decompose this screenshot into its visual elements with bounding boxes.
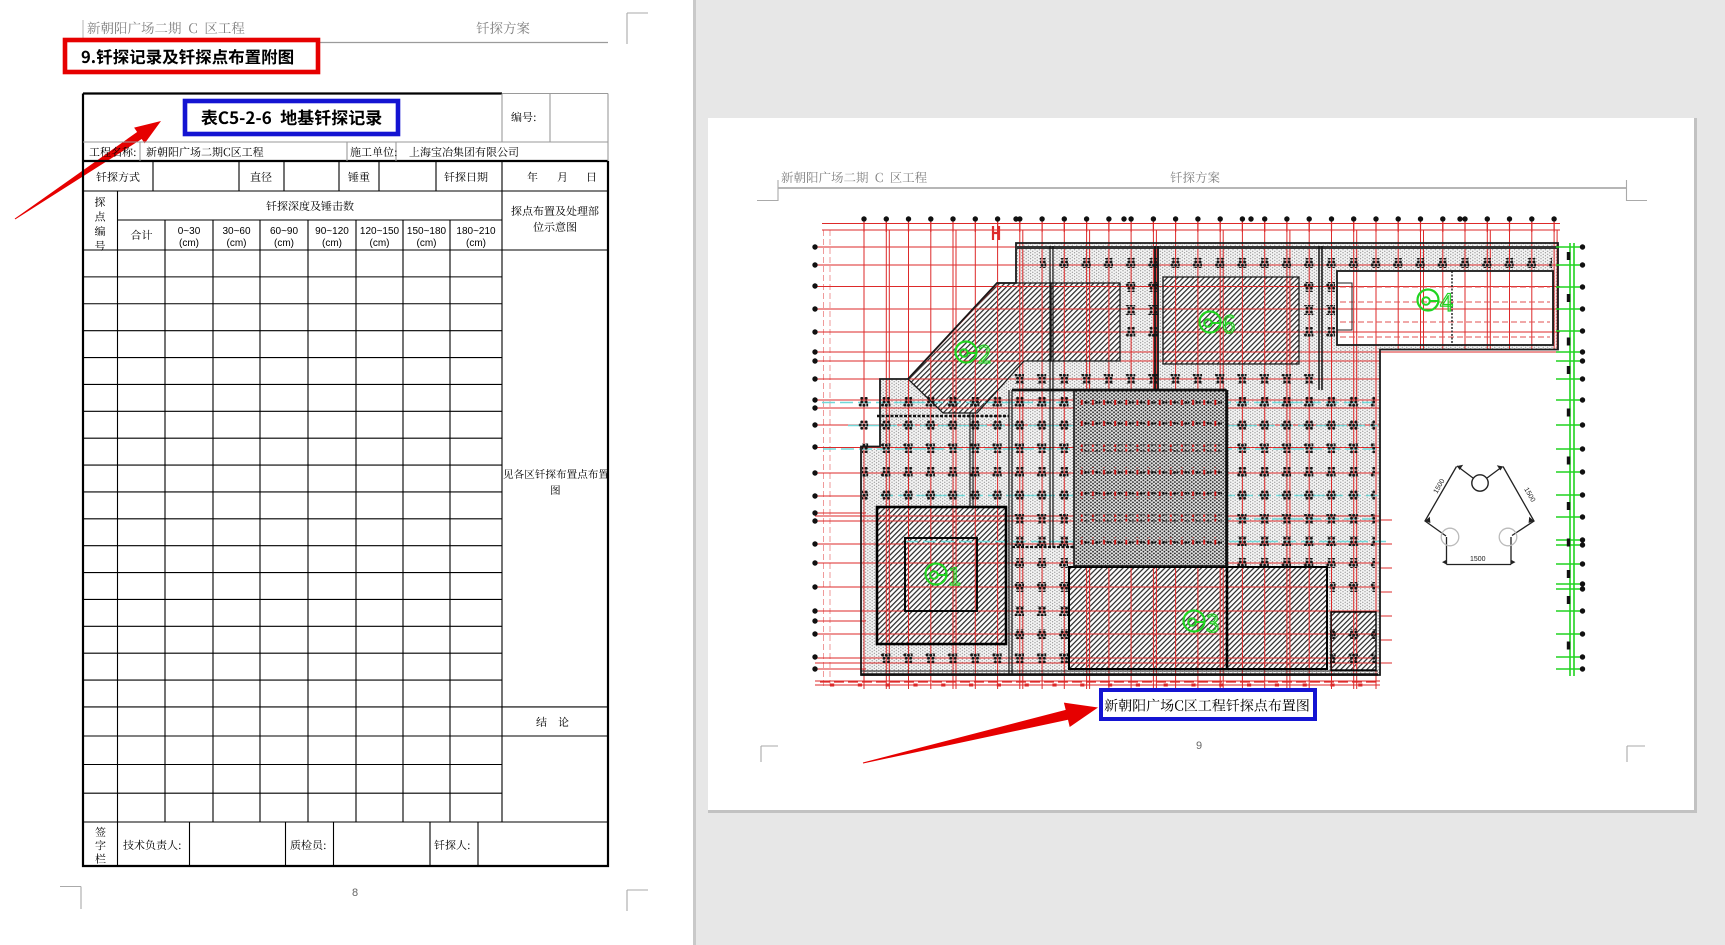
svg-text:30~60: 30~60 [222, 226, 251, 237]
svg-text:180~210: 180~210 [456, 226, 496, 237]
svg-text:9: 9 [1196, 740, 1202, 752]
svg-text:(cm): (cm) [227, 238, 247, 249]
svg-text:1500: 1500 [1470, 556, 1486, 563]
svg-text:8: 8 [352, 887, 358, 899]
svg-text:(cm): (cm) [466, 238, 486, 249]
svg-text:90~120: 90~120 [315, 226, 349, 237]
svg-text:60~90: 60~90 [270, 226, 299, 237]
svg-text:0~30: 0~30 [178, 226, 201, 237]
svg-text:(cm): (cm) [274, 238, 294, 249]
svg-text:(cm): (cm) [417, 238, 437, 249]
svg-text:150~180: 150~180 [407, 226, 447, 237]
svg-text:(cm): (cm) [322, 238, 342, 249]
svg-text:120~150: 120~150 [360, 226, 400, 237]
svg-text:(cm): (cm) [370, 238, 390, 249]
svg-text:(cm): (cm) [179, 238, 199, 249]
